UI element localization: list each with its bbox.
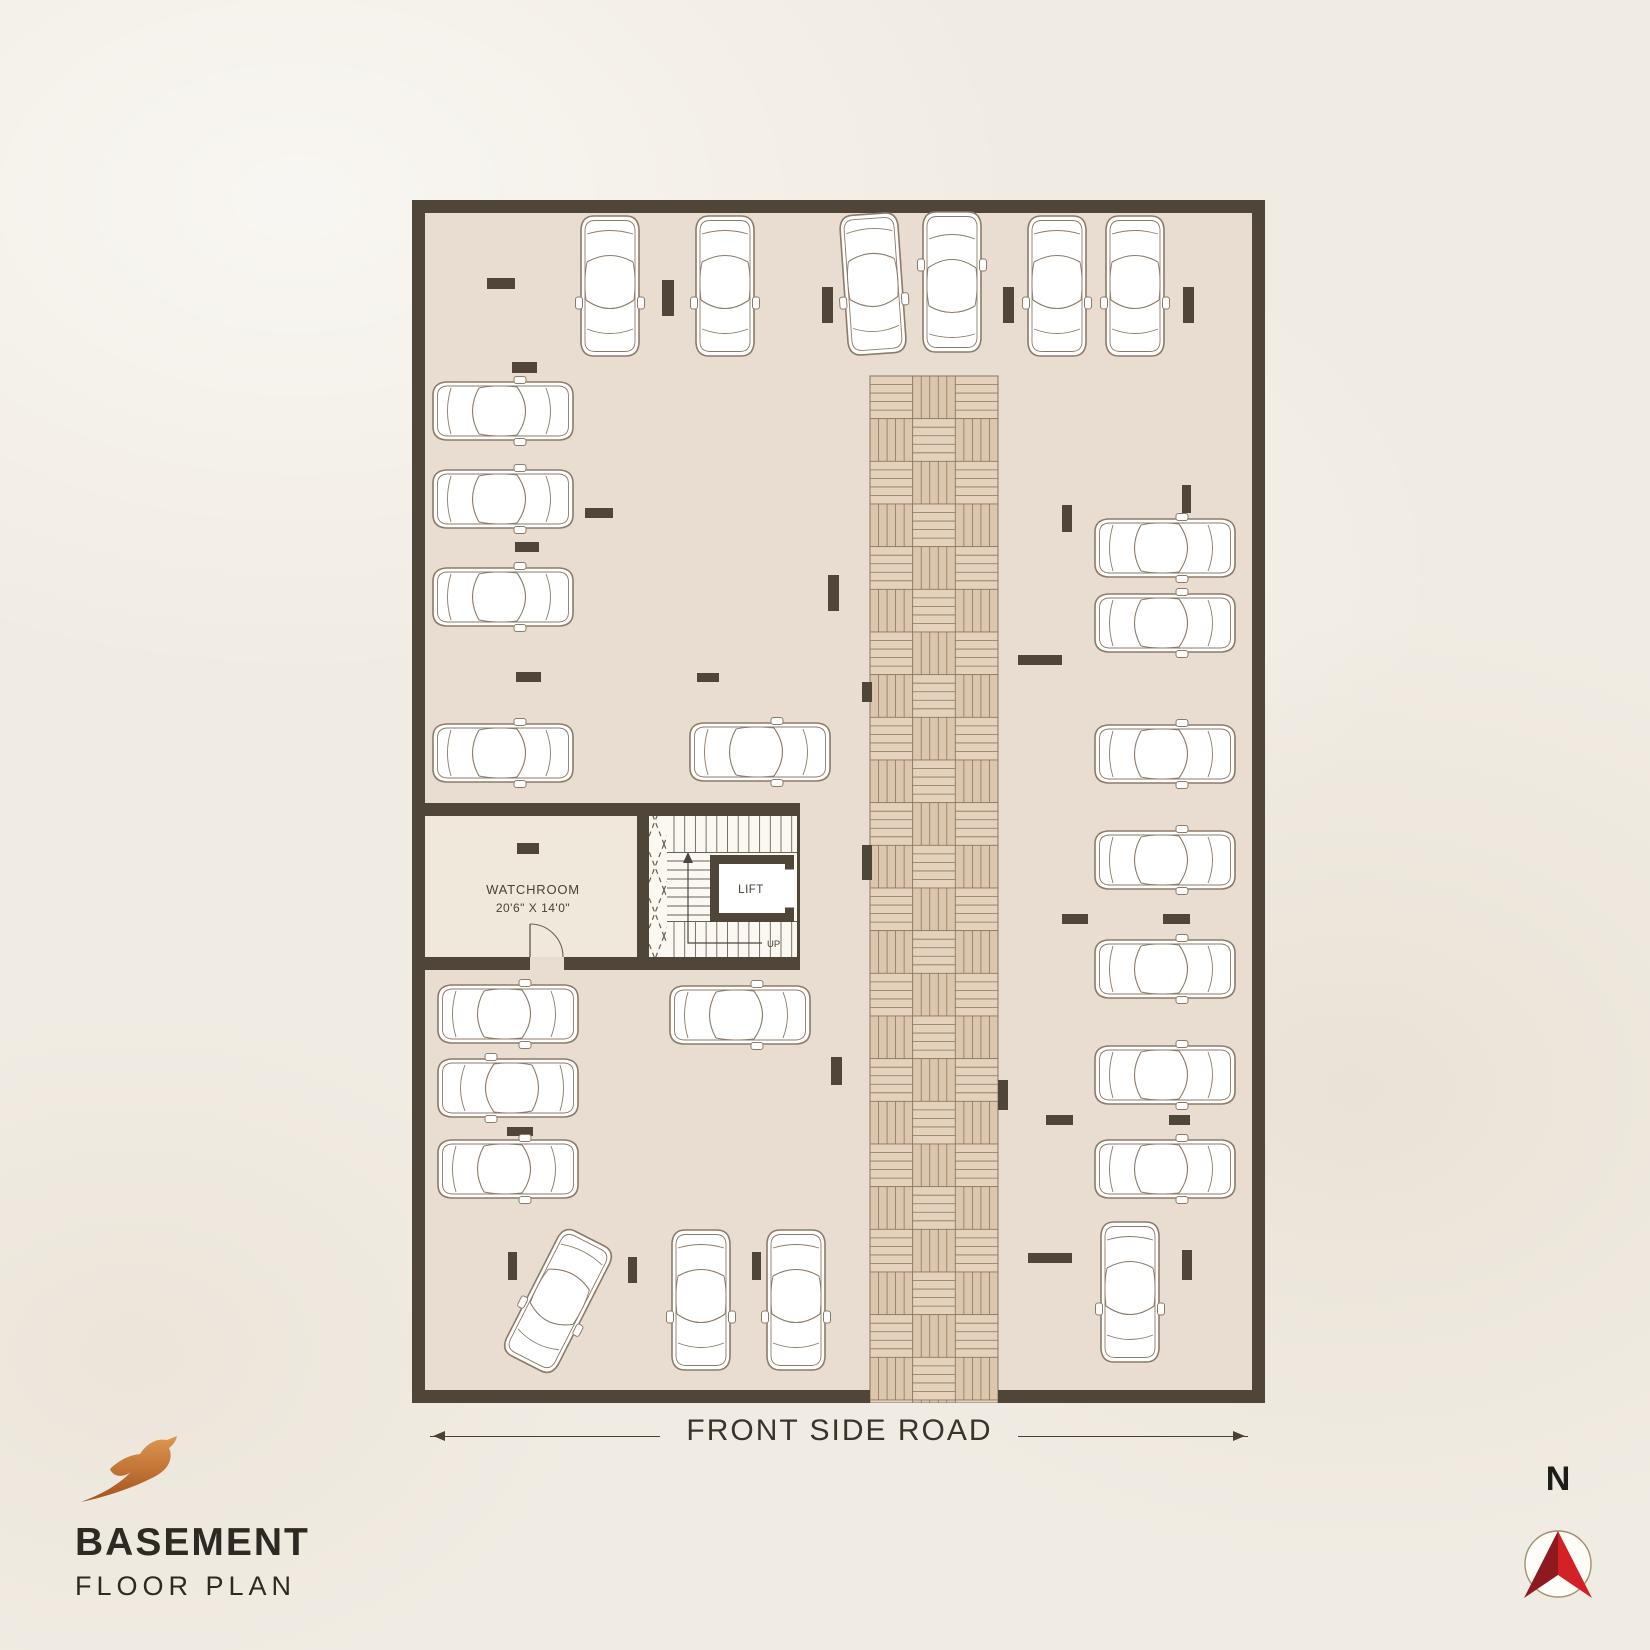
car bbox=[1095, 720, 1235, 789]
up-label: UP bbox=[767, 939, 780, 950]
pillar-stub bbox=[628, 1257, 637, 1283]
floor-plan-drawing: LIFT UP WATCHROOM 20'6" X 14'0" bbox=[412, 200, 1265, 1403]
watchroom-dimensions: 20'6" X 14'0" bbox=[496, 901, 570, 915]
road-arrow-right bbox=[1018, 1436, 1248, 1437]
car bbox=[1095, 1135, 1235, 1204]
pillar-stub bbox=[1003, 287, 1014, 323]
pillar-stub bbox=[697, 673, 719, 682]
pillar-stub bbox=[1018, 655, 1062, 665]
bird-logo-icon bbox=[75, 1436, 205, 1508]
pillar-stub bbox=[1182, 485, 1191, 513]
car bbox=[438, 980, 578, 1049]
pillar-stub bbox=[822, 287, 833, 323]
car bbox=[762, 1230, 831, 1370]
car bbox=[1095, 1041, 1235, 1110]
watchroom-label: WATCHROOM bbox=[486, 882, 580, 897]
pillar-stub bbox=[515, 542, 539, 552]
pillar-stub bbox=[1163, 914, 1190, 924]
pillar-stub bbox=[752, 1252, 761, 1280]
pillar-stub bbox=[1062, 914, 1088, 924]
pillar-stub bbox=[1028, 1253, 1072, 1263]
wall-bottom-left bbox=[412, 1390, 870, 1403]
lift: LIFT bbox=[710, 855, 794, 922]
car bbox=[438, 1135, 578, 1204]
car bbox=[433, 377, 573, 446]
service-block: LIFT UP WATCHROOM 20'6" X 14'0" bbox=[425, 803, 800, 970]
car bbox=[670, 981, 810, 1050]
pillar-stub bbox=[517, 843, 539, 854]
car bbox=[667, 1230, 736, 1370]
wall-top bbox=[412, 200, 1265, 213]
driveway-parquet bbox=[870, 376, 998, 1403]
branding-block: BASEMENT FLOOR PLAN bbox=[75, 1436, 495, 1602]
car bbox=[1023, 216, 1092, 356]
car bbox=[576, 216, 645, 356]
poster-title: BASEMENT bbox=[75, 1521, 495, 1565]
car bbox=[433, 719, 573, 788]
north-label: N bbox=[1546, 1460, 1571, 1498]
car bbox=[691, 216, 760, 356]
pillar-stub bbox=[487, 278, 515, 289]
poster-page: LIFT UP WATCHROOM 20'6" X 14'0" bbox=[0, 0, 1650, 1650]
car bbox=[1095, 826, 1235, 895]
pillar-stub bbox=[662, 280, 674, 316]
car bbox=[1101, 216, 1170, 356]
pillar-stub bbox=[1062, 505, 1072, 532]
north-compass: N bbox=[1512, 1452, 1604, 1609]
car bbox=[1095, 589, 1235, 658]
pillar-stub bbox=[1046, 1115, 1073, 1125]
car bbox=[1095, 514, 1235, 583]
wall-bottom-right bbox=[998, 1390, 1265, 1403]
car bbox=[433, 465, 573, 534]
pillar-stub bbox=[516, 672, 541, 682]
poster-subtitle: FLOOR PLAN bbox=[75, 1571, 495, 1602]
wall-left bbox=[412, 200, 425, 1403]
pillar-stub bbox=[862, 682, 872, 702]
pillar-stub bbox=[1182, 1250, 1192, 1280]
pillar-stub bbox=[508, 1252, 517, 1280]
pillar-stub bbox=[862, 845, 872, 880]
pillar-stub bbox=[998, 1080, 1008, 1110]
pillar-stub bbox=[1169, 1115, 1190, 1125]
lift-label: LIFT bbox=[738, 884, 764, 896]
pillar-stub bbox=[831, 1057, 842, 1085]
car bbox=[438, 1054, 578, 1123]
pillar-stub bbox=[1183, 287, 1194, 323]
pillar-stub bbox=[828, 575, 839, 611]
car bbox=[1096, 1222, 1165, 1362]
car bbox=[918, 212, 987, 352]
car bbox=[1095, 935, 1235, 1004]
wall-right bbox=[1252, 200, 1265, 1403]
car bbox=[433, 563, 573, 632]
pillar-stub bbox=[512, 362, 537, 373]
pillar-stub bbox=[585, 508, 613, 518]
car bbox=[690, 718, 830, 787]
front-road-label: FRONT SIDE ROAD bbox=[413, 1414, 1266, 1448]
floor-plan: LIFT UP WATCHROOM 20'6" X 14'0" bbox=[412, 200, 1265, 1403]
